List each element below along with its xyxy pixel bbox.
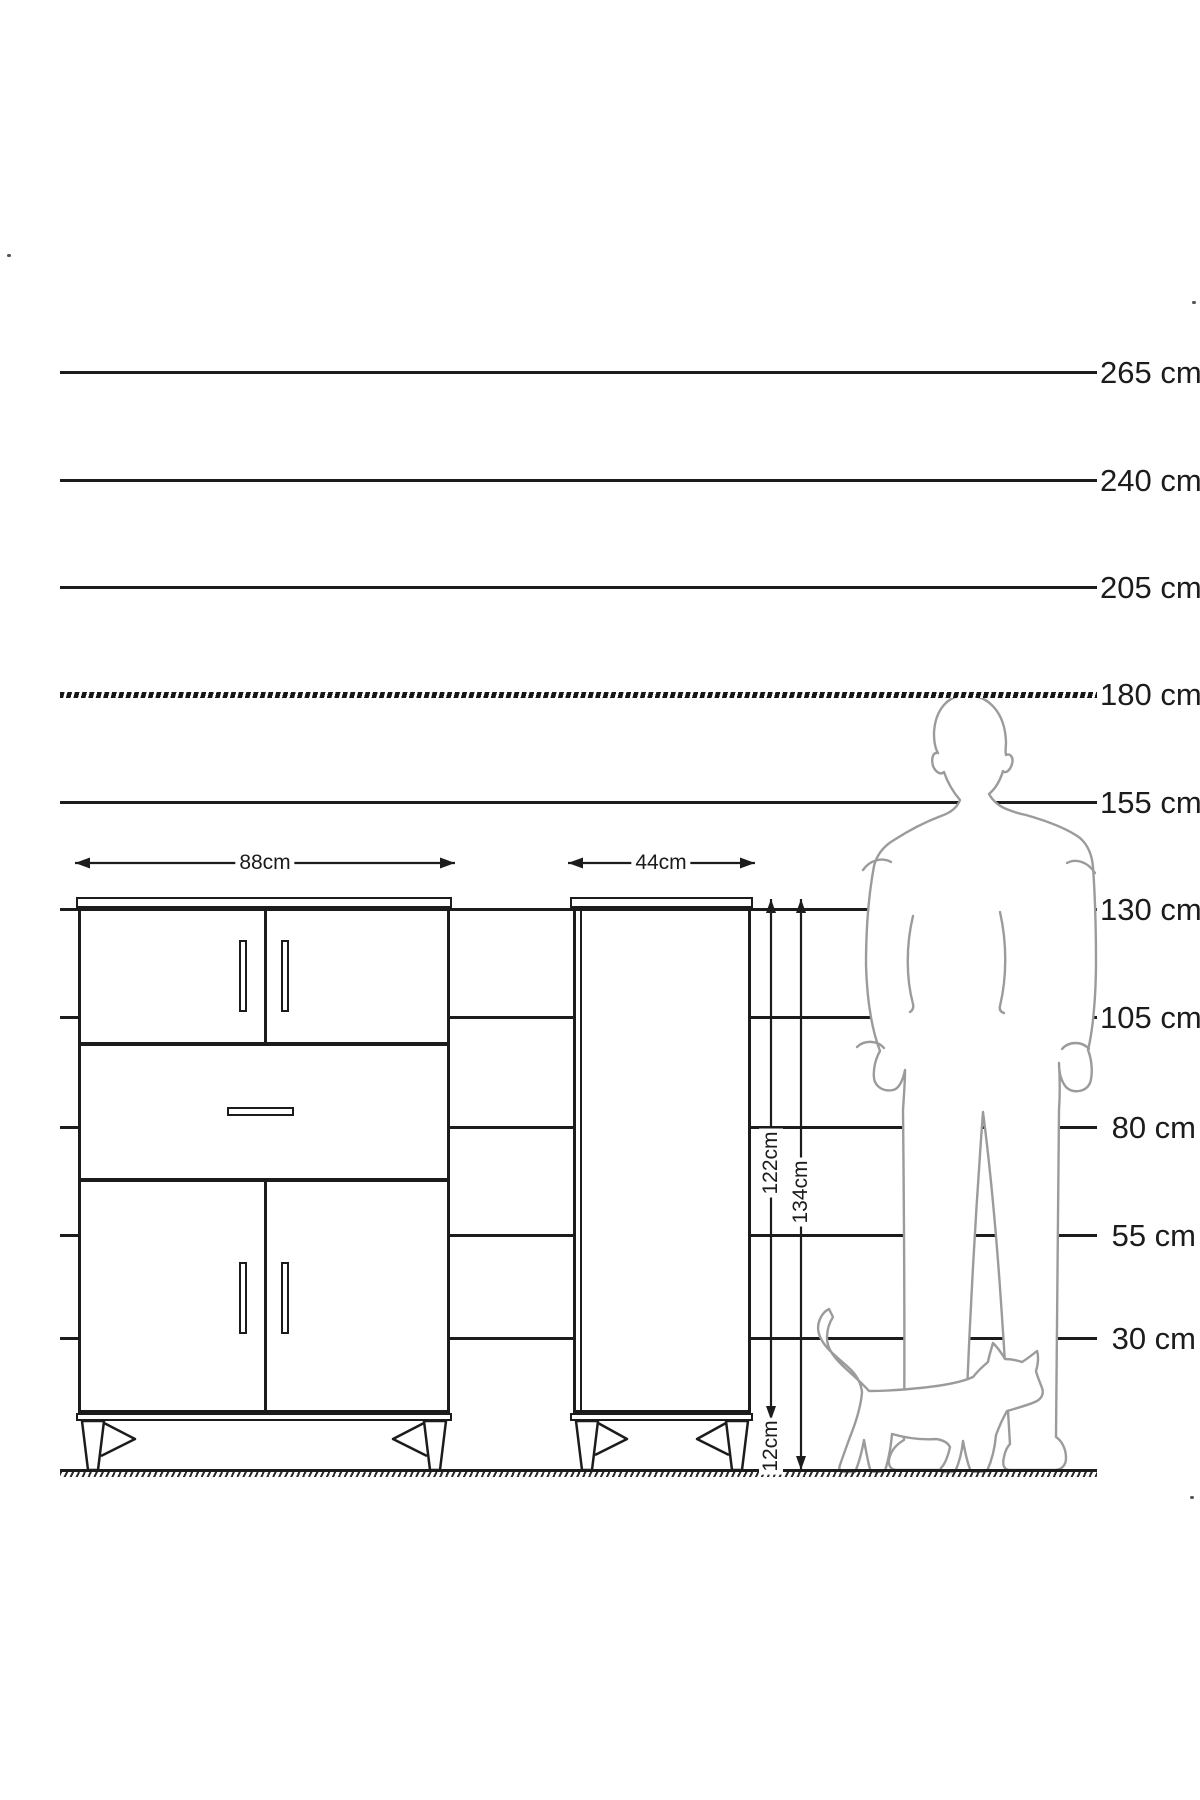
cabinet-top-panel bbox=[570, 897, 753, 908]
cabinet-leg-height-label: 12cm bbox=[759, 1417, 783, 1474]
scan-artifact-dot bbox=[1192, 301, 1196, 304]
scan-artifact-dot bbox=[1190, 1496, 1194, 1499]
cat-silhouette bbox=[818, 1309, 1043, 1472]
cabinet-body bbox=[573, 908, 751, 1413]
lower-left-door-handle bbox=[239, 1262, 247, 1334]
scale-label-240cm: 240 cm bbox=[1100, 464, 1196, 498]
lower-right-door-handle bbox=[281, 1262, 289, 1334]
scale-label-55cm: 55 cm bbox=[1100, 1219, 1196, 1253]
man-silhouette bbox=[857, 695, 1096, 1470]
scale-label-155cm: 155 cm bbox=[1100, 786, 1196, 820]
cabinet-door-edge bbox=[580, 911, 582, 1410]
cabinet-base-strip bbox=[570, 1413, 753, 1421]
ruler-line bbox=[60, 586, 1097, 589]
upper-right-door-handle bbox=[281, 940, 289, 1012]
scale-label-80cm: 80 cm bbox=[1100, 1111, 1196, 1145]
upper-left-door-handle bbox=[239, 940, 247, 1012]
scale-label-205cm: 205 cm bbox=[1100, 571, 1196, 605]
sideboard-body bbox=[78, 908, 450, 1413]
upper-doors-split bbox=[264, 911, 267, 1042]
ruler-line bbox=[60, 479, 1097, 482]
sideboard-width-label: 88cm bbox=[235, 851, 294, 875]
cabinet-legs bbox=[576, 1421, 748, 1470]
furniture-dimension-diagram: 265 cm 240 cm 205 cm 180 cm 155 cm 130 c… bbox=[0, 0, 1200, 1800]
ground-hatch bbox=[60, 1472, 1097, 1477]
cabinet-width-label: 44cm bbox=[631, 851, 690, 875]
sideboard-divider-upper bbox=[81, 1042, 447, 1046]
scale-label-105cm: 105 cm bbox=[1100, 1001, 1196, 1035]
ruler-line bbox=[60, 371, 1097, 374]
sideboard-base-strip bbox=[76, 1413, 452, 1421]
scale-label-30cm: 30 cm bbox=[1100, 1322, 1196, 1356]
scale-label-180cm: 180 cm bbox=[1100, 678, 1196, 712]
lower-doors-split bbox=[264, 1182, 267, 1410]
drawer-handle bbox=[227, 1107, 294, 1116]
scan-artifact-dot bbox=[7, 254, 11, 257]
sideboard-top-panel bbox=[76, 897, 452, 908]
sideboard-legs bbox=[82, 1421, 446, 1470]
ruler-line bbox=[60, 801, 1097, 804]
cabinet-total-height-label: 134cm bbox=[789, 1157, 813, 1226]
cabinet-body-height-label: 122cm bbox=[759, 1128, 783, 1197]
scale-label-130cm: 130 cm bbox=[1100, 893, 1196, 927]
scale-label-265cm: 265 cm bbox=[1100, 356, 1196, 390]
ruler-line-dashed-180cm bbox=[60, 692, 1097, 698]
